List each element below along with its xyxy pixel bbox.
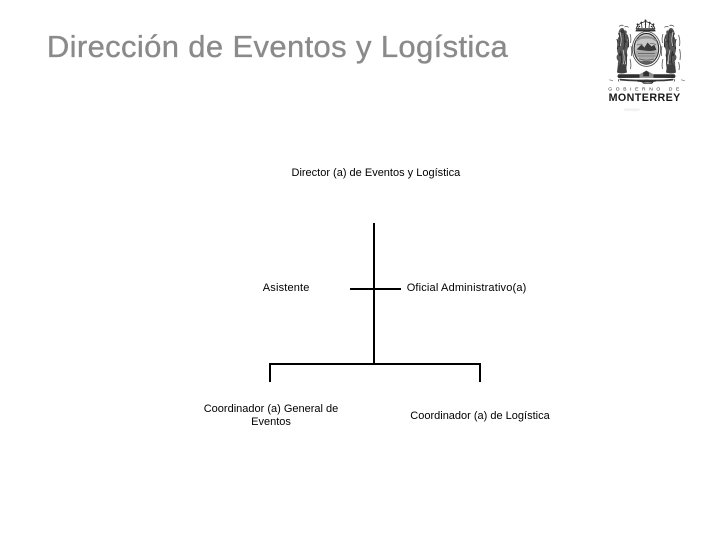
svg-text:MONTERREY: MONTERREY — [609, 92, 681, 104]
